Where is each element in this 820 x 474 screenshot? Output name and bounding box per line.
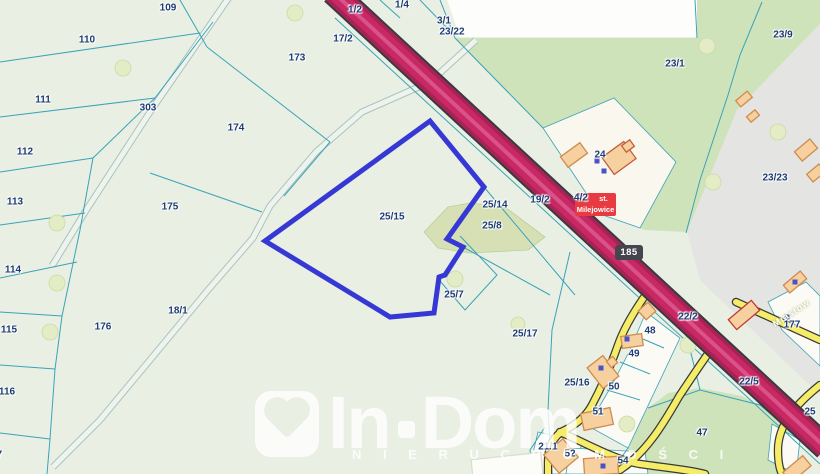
parcel-label-51: 51	[592, 407, 603, 418]
parcel-label-23-1: 23/1	[665, 59, 684, 70]
parcel-label-48: 48	[644, 326, 655, 337]
parcel-label-25-14: 25/14	[482, 200, 507, 211]
parcel-label-175: 175	[162, 202, 179, 213]
parcel-label-23-22: 23/22	[439, 27, 464, 38]
parcel-label-116: 116	[0, 387, 15, 398]
parcel-label-22-2: 22/2	[678, 312, 697, 323]
parcel-label-54: 54	[617, 456, 628, 467]
parcel-label-23-9: 23/9	[773, 30, 792, 41]
parcel-label-23-23: 23/23	[762, 173, 787, 184]
parcel-label-176: 176	[95, 322, 112, 333]
parcel-label-43: 43	[264, 402, 275, 413]
parcel-label-17-2: 17/2	[333, 34, 352, 45]
parcel-label-112: 112	[17, 147, 33, 158]
parcel-label-111: 111	[35, 95, 51, 106]
parcel-label-177: 177	[784, 320, 801, 331]
parcel-label-22-5: 22/5	[739, 377, 758, 388]
parcel-label-25-8: 25/8	[482, 221, 501, 232]
parcel-label-50: 50	[608, 382, 619, 393]
map-viewport[interactable]: 185 st. Milejowice Miastow 1091101111121…	[0, 0, 820, 474]
parcel-label-3-1: 3/1	[437, 16, 451, 27]
parcel-label-25-17: 25/17	[512, 329, 537, 340]
parcel-label-25-15: 25/15	[379, 212, 404, 223]
parcel-label-1-4: 1/4	[395, 0, 409, 11]
parcel-label-115: 115	[1, 325, 17, 336]
parcel-label-52: 52	[564, 449, 575, 460]
parcel-label-47: 47	[696, 428, 707, 439]
parcel-label-19-2: 19/2	[530, 195, 549, 206]
parcel-label-25-7: 25/7	[444, 290, 463, 301]
parcel-label-174: 174	[228, 123, 245, 134]
parcel-label-25: 25	[804, 407, 815, 418]
parcel-label-21-1: 21/1	[538, 442, 557, 453]
parcel-label-25-16: 25/16	[564, 378, 589, 389]
parcel-label-114: 114	[5, 265, 21, 276]
parcel-label-1-2: 1/2	[348, 5, 362, 16]
parcel-label-24: 24	[594, 150, 605, 161]
parcel-label-4-2: 4/2	[574, 193, 588, 204]
parcel-label-49: 49	[628, 349, 639, 360]
parcel-label-173: 173	[289, 53, 306, 64]
parcel-label-18-1: 18/1	[168, 306, 187, 317]
parcel-label-113: 113	[7, 197, 23, 208]
parcel-label-117: 117	[0, 450, 2, 461]
parcel-label-110: 110	[79, 35, 95, 46]
labels-layer: 1091101111121131141151161173031731741751…	[0, 0, 820, 474]
parcel-label-109: 109	[160, 3, 177, 14]
parcel-label-303: 303	[140, 103, 157, 114]
